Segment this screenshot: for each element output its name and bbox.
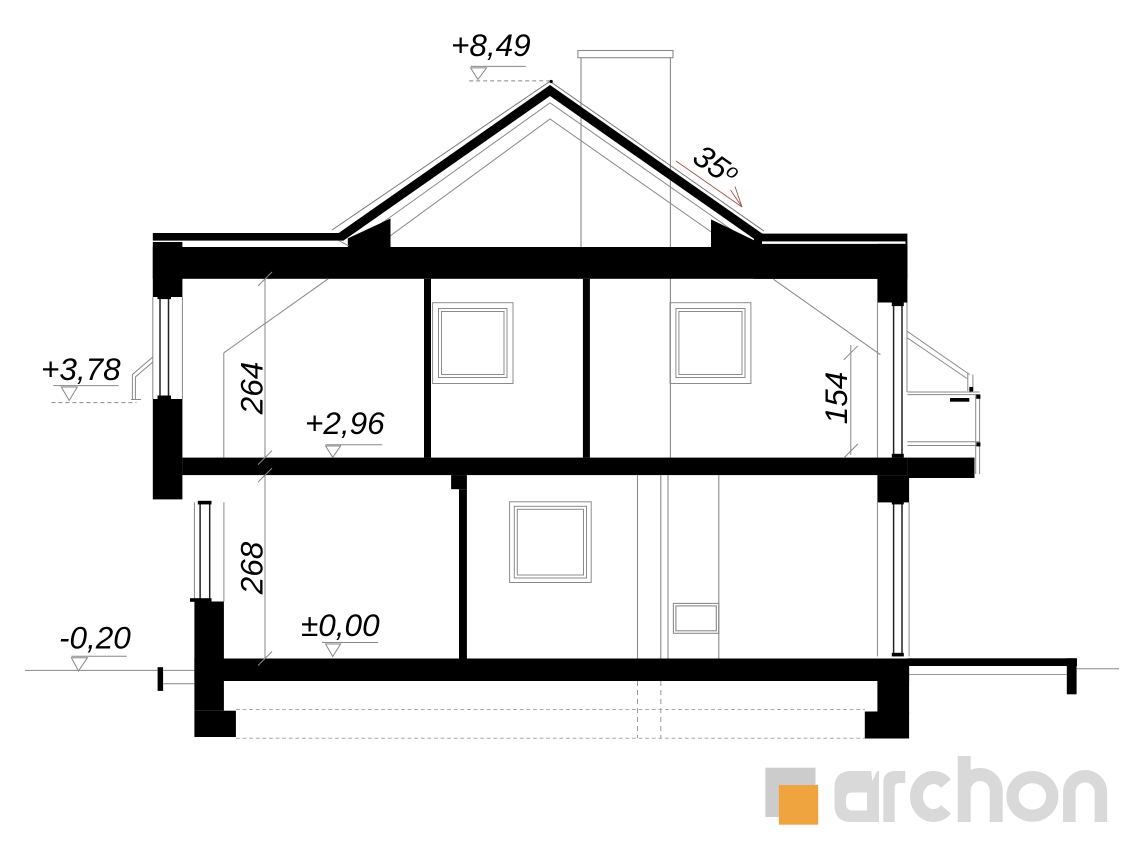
svg-text:-0,20: -0,20 [59,620,131,656]
svg-text:268: 268 [234,541,270,595]
svg-text:+3,78: +3,78 [41,351,121,387]
svg-text:154: 154 [818,372,854,425]
svg-text:+8,49: +8,49 [451,27,531,63]
svg-text:±0,00: ±0,00 [301,607,380,643]
svg-text:+2,96: +2,96 [305,405,385,441]
svg-text:264: 264 [234,362,270,416]
